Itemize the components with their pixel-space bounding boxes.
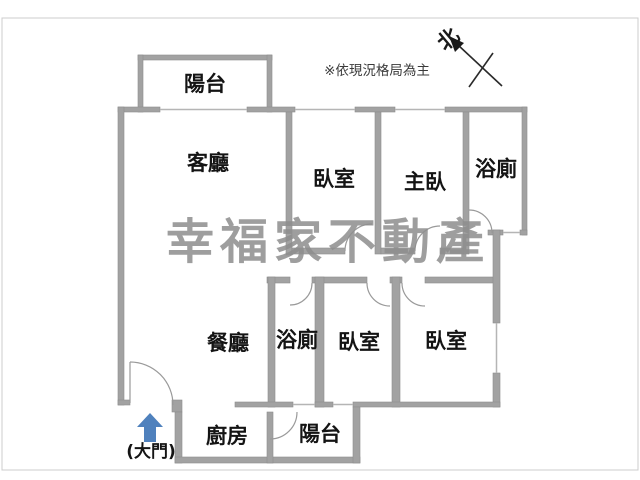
room-label-balcony-top: 陽台 [184, 72, 226, 96]
wall-segment [425, 277, 497, 283]
room-label-bedroom-bottom-left: 臥室 [338, 330, 380, 354]
wall-segment [493, 230, 500, 323]
wall-segment [138, 55, 272, 60]
wall-segment [118, 400, 130, 405]
room-label-dining-room: 餐廳 [207, 331, 249, 355]
room-label-bedroom-bottom-right: 臥室 [425, 329, 467, 353]
north-compass-icon: 北 [433, 23, 502, 87]
floorplan-drawing: 陽台 客廳 臥室 主臥 浴廁 餐廳 浴廁 臥室 臥室 廚房 陽台 (大門) 北 … [0, 0, 640, 480]
wall-segment [445, 107, 527, 112]
brand-watermark: 幸福家不動產 [166, 214, 490, 270]
room-label-bathroom-top: 浴廁 [475, 157, 517, 181]
wall-segment [355, 107, 395, 112]
door-arc [290, 283, 312, 305]
room-label-bedroom-top: 臥室 [313, 167, 355, 191]
entrance-label: (大門) [126, 441, 176, 462]
wall-segment [172, 400, 182, 412]
room-label-living-room: 客廳 [187, 151, 229, 175]
entrance-marker: (大門) [126, 413, 176, 462]
compass-shaft [458, 45, 502, 86]
room-label-master-bedroom: 主臥 [404, 170, 447, 194]
entrance-arrow-icon [137, 413, 163, 442]
door-arc [270, 412, 297, 439]
room-label-balcony-bottom: 陽台 [299, 422, 341, 446]
wall-segment [118, 107, 160, 112]
wall-segment [392, 277, 400, 407]
wall-segment [520, 230, 527, 235]
wall-segment [247, 107, 295, 112]
door-arc [367, 283, 390, 306]
wall-segment [138, 55, 143, 112]
compass-north-label: 北 [433, 23, 465, 55]
wall-segment [235, 402, 293, 407]
room-label-bathroom-bottom: 浴廁 [276, 328, 318, 352]
disclaimer-note: ※依現況格局為主 [324, 63, 430, 79]
wall-segment [267, 412, 273, 463]
wall-segment [118, 107, 124, 405]
floorplan-page: 陽台 客廳 臥室 主臥 浴廁 餐廳 浴廁 臥室 臥室 廚房 陽台 (大門) 北 … [0, 0, 640, 480]
wall-segment [315, 402, 333, 407]
wall-segment [268, 277, 275, 407]
wall-segment [353, 407, 360, 463]
door-arc [402, 283, 425, 306]
wall-segment [522, 107, 527, 235]
wall-segment [353, 402, 500, 407]
wall-segment [175, 412, 182, 463]
room-label-kitchen: 廚房 [206, 424, 248, 448]
wall-segment [267, 55, 272, 112]
door-arc [130, 362, 173, 405]
